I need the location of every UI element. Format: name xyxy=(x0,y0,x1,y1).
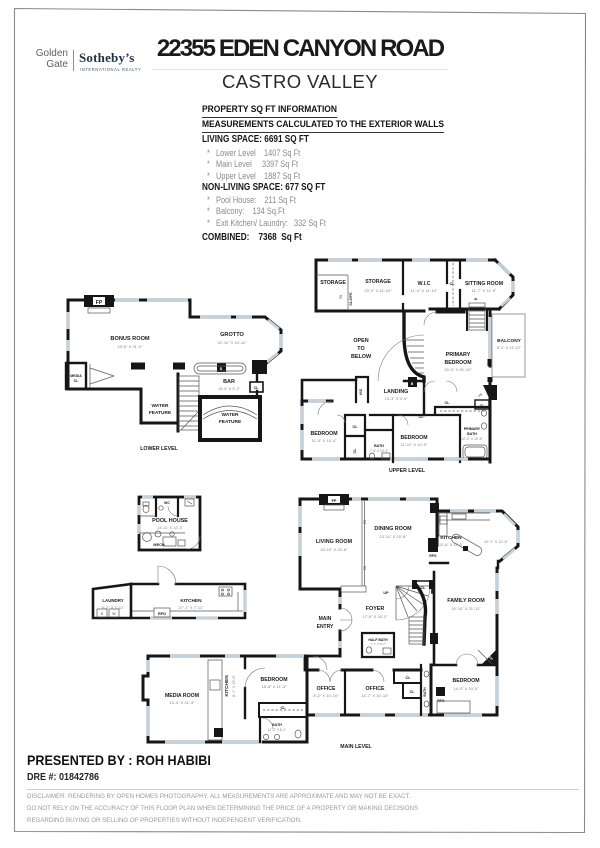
svg-text:11'-0" X 14'-4": 11'-0" X 14'-4" xyxy=(312,438,338,443)
svg-text:POOL HOUSE: POOL HOUSE xyxy=(152,518,188,524)
svg-text:MAIN: MAIN xyxy=(319,616,332,622)
svg-text:OFFICE: OFFICE xyxy=(365,686,385,692)
svg-text:BATH: BATH xyxy=(467,432,477,436)
svg-text:BEDROOM: BEDROOM xyxy=(260,677,287,683)
svg-text:6'-1" X 15'-5": 6'-1" X 15'-5" xyxy=(232,674,236,697)
svg-text:FEATURE: FEATURE xyxy=(149,410,172,416)
svg-text:14'-7" X 10'-10": 14'-7" X 10'-10" xyxy=(361,693,389,698)
svg-text:17'-9" X 16'-2": 17'-9" X 16'-2" xyxy=(362,614,388,619)
svg-text:CL: CL xyxy=(74,379,80,383)
svg-text:20'-2" X 11'-10": 20'-2" X 11'-10" xyxy=(364,288,392,293)
svg-text:WATER: WATER xyxy=(222,412,240,418)
svg-text:CL: CL xyxy=(420,586,426,590)
svg-text:CL: CL xyxy=(409,690,415,694)
svg-text:DN: DN xyxy=(363,519,367,524)
svg-text:KITCHEN: KITCHEN xyxy=(224,675,230,697)
svg-text:B: B xyxy=(474,297,478,300)
svg-text:TO: TO xyxy=(357,346,364,352)
svg-text:DINING ROOM: DINING ROOM xyxy=(374,526,412,532)
svg-text:CL: CL xyxy=(352,425,358,429)
svg-text:14'-4" X 21'-4": 14'-4" X 21'-4" xyxy=(169,700,195,705)
svg-text:BATH: BATH xyxy=(423,687,427,697)
svg-text:13'-3" X 9'-4": 13'-3" X 9'-4" xyxy=(384,396,408,401)
svg-text:11'-11" X 10'-0": 11'-11" X 10'-0" xyxy=(401,442,428,447)
svg-text:7'-7" X 5'-7": 7'-7" X 5'-7" xyxy=(370,642,386,646)
svg-text:BAR: BAR xyxy=(223,379,235,385)
svg-text:LAUNDRY: LAUNDRY xyxy=(102,598,123,603)
svg-text:FEATURE: FEATURE xyxy=(219,419,242,425)
svg-text:RFG: RFG xyxy=(158,612,166,616)
svg-text:CL: CL xyxy=(280,706,286,710)
svg-text:B: B xyxy=(411,382,414,386)
svg-text:FAMILY ROOM: FAMILY ROOM xyxy=(447,598,485,604)
svg-text:11'-4" X 6'-1": 11'-4" X 6'-1" xyxy=(268,728,286,732)
svg-text:CL: CL xyxy=(353,448,357,454)
svg-text:UP: UP xyxy=(383,591,389,595)
svg-text:15'-10" X 21'-8": 15'-10" X 21'-8" xyxy=(320,547,348,552)
svg-text:MEDIA ROOM: MEDIA ROOM xyxy=(165,693,199,699)
svg-text:15'-6" X 11'-3": 15'-6" X 11'-3" xyxy=(262,684,288,689)
svg-text:W.I.C: W.I.C xyxy=(418,281,431,287)
svg-text:W: W xyxy=(112,612,116,616)
svg-text:BEDROOM: BEDROOM xyxy=(444,360,471,366)
svg-text:SLOPE: SLOPE xyxy=(348,292,353,306)
svg-text:LANDING: LANDING xyxy=(384,389,409,395)
svg-text:OFFICE: OFFICE xyxy=(316,686,336,692)
svg-text:S: S xyxy=(220,366,223,371)
svg-text:14'-3" X 14'-5": 14'-3" X 14'-5" xyxy=(453,686,479,691)
svg-text:GROTTO: GROTTO xyxy=(220,332,244,338)
svg-text:8'-2" X 10'-10": 8'-2" X 10'-10" xyxy=(313,693,339,698)
svg-text:DN: DN xyxy=(363,565,367,570)
svg-text:KITCHEN: KITCHEN xyxy=(180,598,202,604)
svg-text:7'-6" X 10'-4": 7'-6" X 10'-4" xyxy=(370,449,388,453)
svg-text:MEDIA: MEDIA xyxy=(70,374,82,378)
svg-text:D: D xyxy=(101,612,104,616)
svg-text:STORAGE: STORAGE xyxy=(365,279,391,285)
svg-text:UPPER LEVEL: UPPER LEVEL xyxy=(389,468,426,474)
svg-text:BEDROOM: BEDROOM xyxy=(310,431,337,437)
svg-text:BEDROOM: BEDROOM xyxy=(452,678,479,684)
svg-text:PRIMARY: PRIMARY xyxy=(464,427,481,431)
svg-text:WATER: WATER xyxy=(152,403,170,409)
svg-text:MAIN LEVEL: MAIN LEVEL xyxy=(340,744,372,750)
svg-text:CL: CL xyxy=(418,415,424,419)
svg-text:15'-10" X 21'-11": 15'-10" X 21'-11" xyxy=(451,606,481,611)
svg-text:BEDROOM: BEDROOM xyxy=(400,435,427,441)
svg-text:STORAGE: STORAGE xyxy=(320,280,346,286)
svg-text:BATH: BATH xyxy=(374,444,384,448)
svg-text:WC: WC xyxy=(164,501,170,505)
svg-text:LOWER LEVEL: LOWER LEVEL xyxy=(140,446,178,452)
svg-text:KITCHEN: KITCHEN xyxy=(440,535,462,541)
svg-text:11'-7" X 11'-0": 11'-7" X 11'-0" xyxy=(472,288,497,293)
svg-text:27'-1" X 7'-11": 27'-1" X 7'-11" xyxy=(179,605,205,610)
svg-text:ENTRY: ENTRY xyxy=(317,624,334,630)
svg-text:11'-4" X 11'-10": 11'-4" X 11'-10" xyxy=(411,288,438,293)
svg-text:PRIMARY: PRIMARY xyxy=(446,352,471,358)
svg-text:MECH: MECH xyxy=(153,543,164,547)
svg-text:W/D: W/D xyxy=(359,388,363,395)
svg-text:CL: CL xyxy=(444,401,450,405)
svg-text:29'-5" X 21'-0": 29'-5" X 21'-0" xyxy=(117,344,143,349)
svg-text:FB: FB xyxy=(477,392,483,398)
svg-text:12'-6" X 12'-5": 12'-6" X 12'-5" xyxy=(439,543,464,547)
svg-text:22'-11" X 10'-11": 22'-11" X 10'-11" xyxy=(217,340,247,345)
svg-text:BATH: BATH xyxy=(272,723,282,727)
svg-text:BONUS ROOM: BONUS ROOM xyxy=(110,336,149,342)
svg-text:8'-2" X 13'-10": 8'-2" X 13'-10" xyxy=(497,346,522,350)
svg-text:LIVING ROOM: LIVING ROOM xyxy=(316,539,353,545)
svg-text:BALCONY: BALCONY xyxy=(497,338,522,344)
svg-text:FOYER: FOYER xyxy=(366,606,385,612)
svg-text:DN: DN xyxy=(339,294,343,299)
svg-text:CL: CL xyxy=(405,676,411,680)
svg-text:13'-11" X 15'-8": 13'-11" X 15'-8" xyxy=(379,534,407,539)
svg-text:CL: CL xyxy=(254,386,260,390)
svg-text:BELOW: BELOW xyxy=(351,354,372,360)
svg-text:15'-5" X 9'-2": 15'-5" X 9'-2" xyxy=(218,387,241,391)
svg-text:FP: FP xyxy=(332,499,337,503)
svg-text:SITTING ROOM: SITTING ROOM xyxy=(465,281,503,287)
svg-text:RFG: RFG xyxy=(429,554,437,558)
svg-text:OPEN: OPEN xyxy=(353,338,368,344)
svg-text:CL: CL xyxy=(449,282,455,286)
svg-text:15'-0" X 20'-10": 15'-0" X 20'-10" xyxy=(444,367,472,372)
svg-text:RFG: RFG xyxy=(437,699,445,703)
svg-text:12'-2" X 10'-6": 12'-2" X 10'-6" xyxy=(461,437,483,441)
svg-text:FP: FP xyxy=(96,300,103,306)
svg-text:14'-11" X 12'-3": 14'-11" X 12'-3" xyxy=(157,526,183,530)
svg-text:10'-1" X 12'-5": 10'-1" X 12'-5" xyxy=(484,540,509,544)
